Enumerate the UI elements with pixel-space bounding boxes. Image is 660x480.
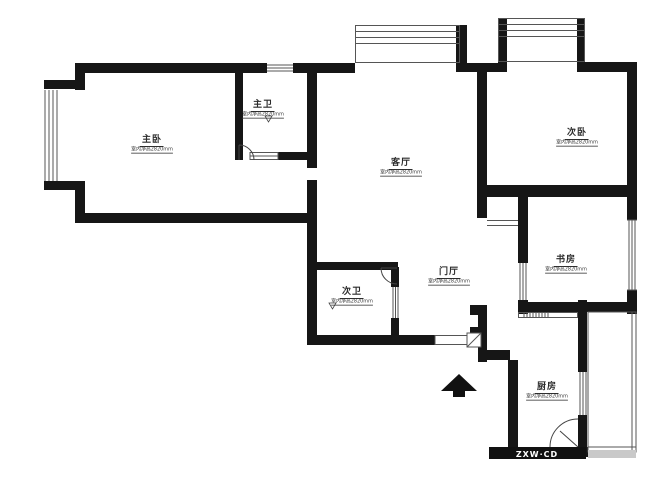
room-label-foyer: 门厅 室内净高2820mm: [424, 260, 475, 287]
door-kitchen-icon: [550, 419, 578, 447]
entry-door-icon: [435, 333, 481, 347]
room-label-study: 书房 室内净高2820mm: [541, 248, 592, 275]
watermark: ZXW·CD: [489, 447, 636, 459]
watermark-text: ZXW·CD: [516, 450, 558, 459]
room-dim-study: 室内净高2820mm: [545, 267, 587, 273]
room-dim-master-bath: 室内净高2820mm: [242, 112, 284, 118]
room-label-master-bedroom: 主卧 室内净高2820mm: [127, 128, 178, 155]
room-label-living-room: 客厅 室内净高2820mm: [376, 151, 427, 178]
floorplan-drawing: ZXW·CD: [0, 0, 660, 480]
room-dim-second-bedroom: 室内净高2820mm: [556, 140, 598, 146]
room-label-kitchen: 厨房 室内净高2820mm: [522, 375, 573, 402]
window-kitchen-top-icon: [519, 313, 578, 318]
room-dim-second-bath: 室内净高2820mm: [331, 299, 373, 305]
door-opening-second-bath-icon: [391, 287, 399, 318]
bay-window-living-icon: [356, 26, 460, 63]
room-label-second-bedroom: 次卧 室内净高2820mm: [552, 121, 603, 148]
room-label-master-bath: 主卫 室内净高2820mm: [238, 93, 289, 120]
north-arrow-icon: [441, 374, 477, 397]
window-kitchen-right-icon: [580, 372, 586, 415]
room-dim-foyer: 室内净高2820mm: [428, 279, 470, 285]
level-marker-icons: [265, 116, 336, 309]
bay-window-master-left-icon: [45, 90, 57, 181]
room-dim-living-room: 室内净高2820mm: [380, 170, 422, 176]
window-study-icon: [627, 220, 637, 290]
door-opening-study-icon: [518, 263, 528, 300]
room-label-second-bath: 次卫 室内净高2820mm: [327, 280, 378, 307]
room-dim-kitchen: 室内净高2820mm: [526, 394, 568, 400]
window-master-bath-icon: [267, 65, 293, 71]
balcony-outline-icon: [588, 312, 636, 452]
floorplan-canvas: ZXW·CD 主卧 室内净高2820mm 主卫 室内净高2820mm 客厅 室内…: [0, 0, 660, 480]
room-dim-master-bedroom: 室内净高2820mm: [131, 147, 173, 153]
door-opening-bedroom-corridor-icon: [487, 218, 518, 226]
bay-window-second-bedroom-icon: [499, 19, 585, 62]
